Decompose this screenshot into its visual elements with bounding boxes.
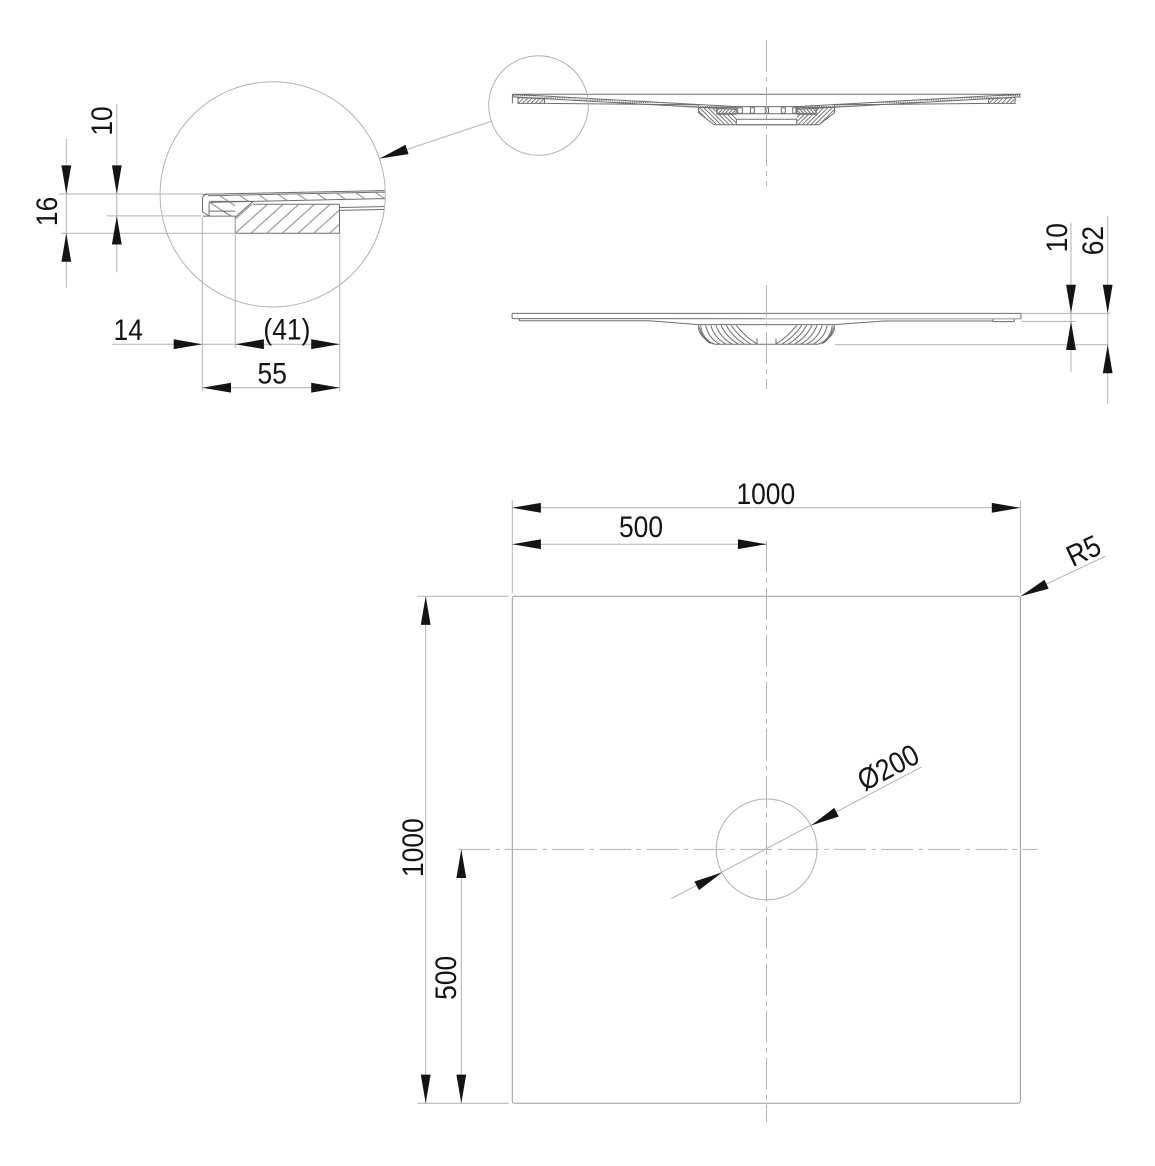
svg-text:55: 55 (258, 356, 287, 390)
svg-text:16: 16 (29, 197, 63, 226)
svg-text:62: 62 (1075, 226, 1109, 255)
svg-text:10: 10 (85, 106, 119, 135)
svg-text:500: 500 (619, 509, 663, 543)
svg-text:10: 10 (1039, 223, 1073, 252)
svg-text:1000: 1000 (736, 476, 795, 510)
svg-text:500: 500 (428, 956, 462, 1000)
svg-text:14: 14 (114, 313, 143, 347)
svg-text:1000: 1000 (395, 818, 429, 877)
svg-text:(41): (41) (263, 312, 310, 346)
